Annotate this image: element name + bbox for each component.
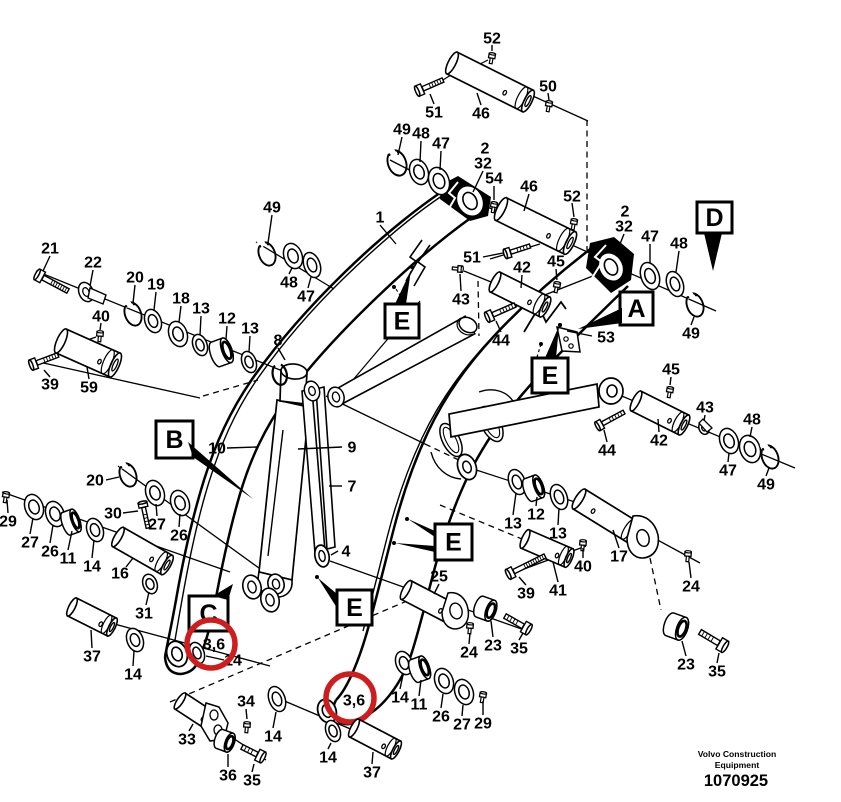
svg-text:42: 42 bbox=[513, 260, 531, 277]
svg-text:37: 37 bbox=[83, 649, 101, 666]
svg-text:47: 47 bbox=[719, 463, 737, 480]
svg-text:39: 39 bbox=[517, 586, 535, 603]
svg-text:29: 29 bbox=[474, 716, 492, 733]
svg-text:48: 48 bbox=[280, 275, 298, 292]
svg-text:13: 13 bbox=[192, 301, 210, 318]
svg-text:Equipment: Equipment bbox=[715, 760, 760, 770]
svg-text:10: 10 bbox=[208, 441, 226, 458]
svg-text:3,6: 3,6 bbox=[203, 637, 225, 654]
svg-text:47: 47 bbox=[297, 289, 315, 306]
svg-text:35: 35 bbox=[510, 641, 528, 658]
svg-text:40: 40 bbox=[574, 559, 592, 576]
svg-text:53: 53 bbox=[597, 330, 615, 347]
svg-text:45: 45 bbox=[547, 254, 565, 271]
svg-text:4: 4 bbox=[342, 544, 351, 561]
svg-text:42: 42 bbox=[650, 433, 668, 450]
svg-text:20: 20 bbox=[126, 270, 144, 287]
svg-text:49: 49 bbox=[682, 326, 700, 343]
svg-text:E: E bbox=[394, 308, 411, 336]
svg-text:7: 7 bbox=[348, 479, 357, 496]
svg-text:27: 27 bbox=[21, 535, 39, 552]
svg-text:19: 19 bbox=[147, 277, 165, 294]
svg-text:29: 29 bbox=[0, 514, 17, 531]
svg-text:21: 21 bbox=[41, 241, 59, 258]
svg-text:31: 31 bbox=[135, 606, 153, 623]
svg-text:51: 51 bbox=[463, 250, 481, 267]
svg-text:35: 35 bbox=[708, 664, 726, 681]
svg-text:59: 59 bbox=[80, 380, 98, 397]
svg-text:22: 22 bbox=[84, 255, 102, 272]
svg-text:E: E bbox=[346, 594, 363, 622]
svg-text:49: 49 bbox=[263, 200, 281, 217]
svg-text:13: 13 bbox=[504, 516, 522, 533]
svg-text:D: D bbox=[705, 204, 723, 232]
svg-text:B: B bbox=[165, 426, 183, 454]
svg-text:24: 24 bbox=[682, 579, 700, 596]
svg-text:51: 51 bbox=[425, 105, 443, 122]
svg-text:E: E bbox=[542, 362, 559, 390]
svg-text:14: 14 bbox=[391, 690, 409, 707]
svg-text:14: 14 bbox=[264, 729, 282, 746]
svg-text:50: 50 bbox=[539, 79, 557, 96]
svg-text:48: 48 bbox=[743, 412, 761, 429]
svg-text:26: 26 bbox=[432, 709, 450, 726]
svg-text:18: 18 bbox=[172, 291, 190, 308]
svg-text:40: 40 bbox=[92, 309, 110, 326]
svg-text:52: 52 bbox=[483, 31, 501, 48]
svg-text:E: E bbox=[445, 529, 462, 557]
svg-text:Volvo Construction: Volvo Construction bbox=[698, 749, 777, 759]
svg-text:14: 14 bbox=[83, 559, 101, 576]
svg-text:48: 48 bbox=[412, 126, 430, 143]
svg-text:A: A bbox=[627, 295, 645, 323]
svg-text:23: 23 bbox=[484, 638, 502, 655]
svg-text:54: 54 bbox=[485, 171, 503, 188]
svg-text:14: 14 bbox=[319, 750, 337, 767]
svg-text:52: 52 bbox=[563, 189, 581, 206]
svg-text:37: 37 bbox=[363, 765, 381, 782]
svg-text:8: 8 bbox=[274, 333, 283, 350]
svg-text:46: 46 bbox=[472, 106, 490, 123]
svg-text:12: 12 bbox=[218, 311, 236, 328]
svg-text:11: 11 bbox=[411, 697, 428, 714]
svg-text:46: 46 bbox=[520, 179, 538, 196]
svg-text:1070925: 1070925 bbox=[704, 772, 768, 790]
svg-text:20: 20 bbox=[86, 473, 104, 490]
svg-text:30: 30 bbox=[104, 506, 122, 523]
svg-text:33: 33 bbox=[178, 732, 196, 749]
svg-text:24: 24 bbox=[460, 645, 478, 662]
svg-text:17: 17 bbox=[610, 549, 628, 566]
svg-text:44: 44 bbox=[492, 333, 510, 350]
svg-text:49: 49 bbox=[757, 477, 775, 494]
svg-text:35: 35 bbox=[243, 773, 261, 790]
svg-text:27: 27 bbox=[453, 717, 471, 734]
svg-text:39: 39 bbox=[41, 377, 59, 394]
svg-text:32: 32 bbox=[615, 219, 633, 236]
svg-text:45: 45 bbox=[662, 362, 680, 379]
svg-text:25: 25 bbox=[430, 569, 448, 586]
svg-text:3,6: 3,6 bbox=[343, 693, 365, 710]
svg-text:41: 41 bbox=[549, 583, 567, 600]
svg-text:47: 47 bbox=[432, 136, 450, 153]
svg-text:27: 27 bbox=[148, 517, 166, 534]
svg-text:9: 9 bbox=[348, 440, 357, 457]
svg-text:43: 43 bbox=[452, 292, 470, 309]
svg-text:36: 36 bbox=[219, 768, 237, 785]
svg-text:13: 13 bbox=[241, 321, 259, 338]
svg-text:43: 43 bbox=[696, 400, 714, 417]
svg-text:23: 23 bbox=[677, 657, 695, 674]
svg-text:26: 26 bbox=[170, 528, 188, 545]
svg-text:1: 1 bbox=[376, 210, 385, 227]
svg-text:47: 47 bbox=[641, 229, 659, 246]
svg-text:49: 49 bbox=[393, 122, 411, 139]
svg-text:26: 26 bbox=[41, 544, 59, 561]
svg-text:14: 14 bbox=[124, 667, 142, 684]
svg-text:16: 16 bbox=[111, 566, 129, 583]
svg-text:48: 48 bbox=[670, 236, 688, 253]
svg-text:34: 34 bbox=[237, 694, 255, 711]
svg-text:11: 11 bbox=[60, 551, 77, 568]
svg-text:12: 12 bbox=[527, 507, 545, 524]
svg-text:44: 44 bbox=[598, 443, 616, 460]
